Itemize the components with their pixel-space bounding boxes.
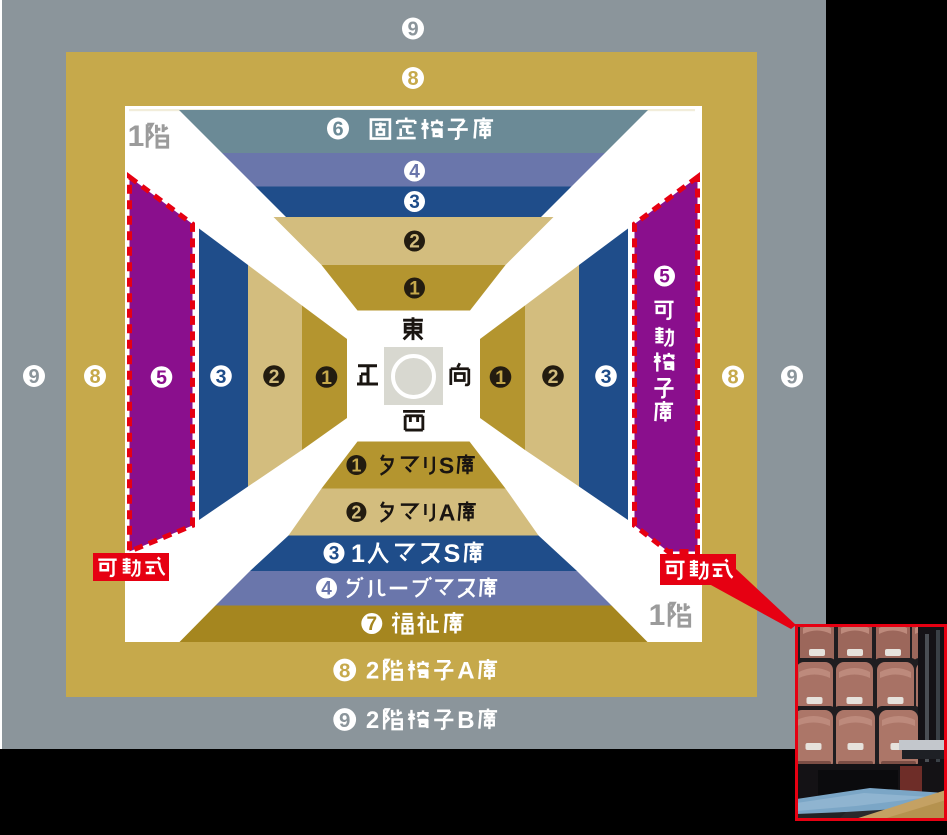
svg-text:1: 1 (321, 367, 332, 389)
svg-text:6: 6 (332, 119, 343, 141)
svg-text:A: A (439, 500, 456, 526)
svg-text:9: 9 (407, 19, 418, 41)
svg-text:1: 1 (351, 455, 361, 475)
svg-text:B: B (457, 707, 474, 734)
svg-text:1: 1 (649, 599, 666, 632)
svg-text:2: 2 (351, 502, 361, 522)
svg-text:3: 3 (216, 366, 227, 388)
svg-text:1: 1 (495, 367, 506, 389)
svg-text:9: 9 (28, 366, 39, 388)
svg-text:2: 2 (548, 366, 559, 388)
svg-text:8: 8 (727, 367, 738, 389)
svg-text:8: 8 (407, 68, 418, 90)
svg-text:S: S (439, 453, 454, 479)
svg-text:5: 5 (156, 367, 167, 389)
svg-text:2: 2 (366, 707, 379, 734)
svg-text:3: 3 (329, 544, 340, 565)
svg-text:2: 2 (269, 366, 280, 388)
svg-text:1: 1 (351, 540, 365, 568)
svg-text:8: 8 (339, 659, 350, 682)
svg-text:3: 3 (409, 192, 420, 213)
svg-text:9: 9 (786, 367, 797, 389)
svg-text:1: 1 (409, 279, 420, 300)
svg-text:3: 3 (601, 366, 612, 388)
svg-text:7: 7 (367, 614, 378, 635)
svg-text:9: 9 (339, 709, 350, 732)
svg-text:5: 5 (659, 267, 670, 288)
svg-text:8: 8 (89, 366, 100, 388)
svg-text:2: 2 (366, 658, 379, 685)
svg-text:S: S (444, 540, 461, 568)
svg-text:2: 2 (409, 232, 420, 253)
svg-text:4: 4 (321, 579, 332, 600)
svg-text:4: 4 (409, 162, 420, 183)
svg-text:1: 1 (128, 120, 145, 153)
svg-text:A: A (457, 658, 474, 685)
